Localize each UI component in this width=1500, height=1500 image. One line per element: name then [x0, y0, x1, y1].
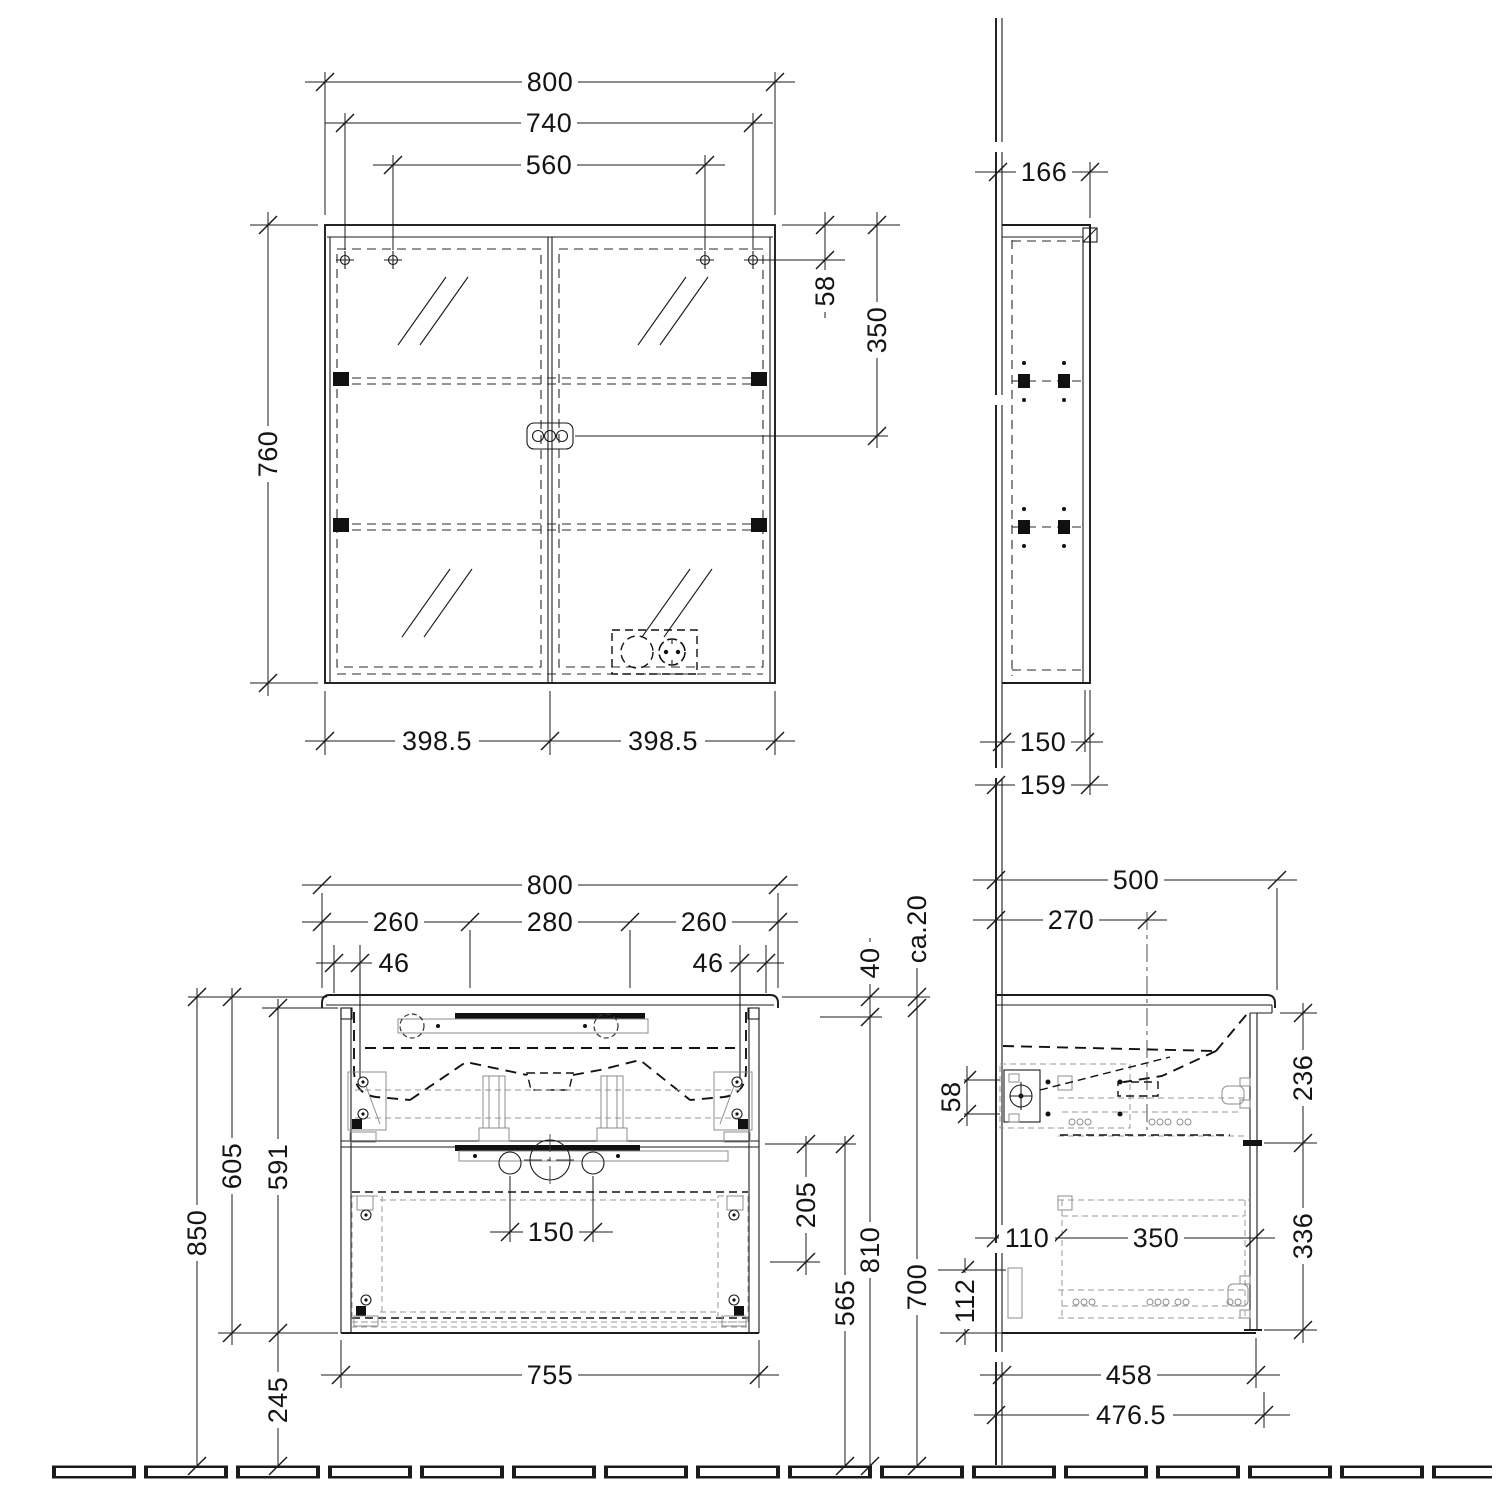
bottom-drawer-internals [352, 1192, 748, 1326]
view-mirror-cabinet-side [1002, 225, 1097, 683]
dim-label: 605 [217, 1143, 247, 1190]
mirror-cabinet-body [325, 225, 775, 683]
dim-vanity-inset-left: 46 [373, 948, 415, 978]
dim-basin-height: 40 [855, 942, 885, 984]
dim-cabinet-height: 591 [263, 1139, 293, 1195]
dim-label: 800 [527, 870, 574, 900]
dim-side-depth: 500 [1108, 865, 1164, 895]
dim-label: 46 [378, 948, 409, 978]
dim-label: 700 [902, 1264, 932, 1311]
view-vanity-side [996, 912, 1275, 1333]
power-socket-unit [527, 423, 573, 449]
dim-cabinet-depth: 458 [1101, 1360, 1157, 1390]
hinge-hardware [1012, 361, 1083, 548]
dim-label: 850 [182, 1210, 212, 1257]
dim-basin-to-bottom: 605 [217, 1138, 247, 1194]
dim-mirror-door-right: 398.5 [621, 726, 705, 756]
mirror-fixing-screws [336, 251, 762, 269]
dim-mirror-mount-top-offset: 58 [810, 270, 840, 312]
dims-mirror-front: 800 740 560 760 58 350 398.5 398.5 [250, 67, 900, 756]
dim-label: 270 [1048, 905, 1095, 935]
dims-mirror-side: 166 150 159 [975, 157, 1108, 800]
dim-label: 565 [830, 1280, 860, 1327]
washbasin-top [322, 995, 778, 1008]
dim-floor-clearance: 245 [263, 1372, 293, 1428]
dim-rail-length: 350 [1128, 1223, 1184, 1253]
dim-label: 810 [855, 1227, 885, 1274]
dim-vanity-span-center: 280 [522, 907, 578, 937]
dim-vanity-width: 800 [522, 870, 578, 900]
dim-label: 166 [1021, 157, 1068, 187]
top-drawer-handle-rail [398, 1013, 648, 1038]
dim-split-height: 565 [830, 1275, 860, 1331]
dim-label: 58 [936, 1081, 966, 1112]
dim-mirror-socket-offset: 350 [862, 302, 892, 358]
dim-label: 260 [681, 907, 728, 937]
dim-underside-height: 810 [855, 1222, 885, 1278]
dim-label: 280 [527, 907, 574, 937]
dim-label: 110 [1005, 1223, 1050, 1253]
dim-bracket-offset: 58 [936, 1076, 966, 1118]
dim-label: 350 [862, 307, 892, 354]
dim-label: 755 [527, 1360, 574, 1390]
dim-label: 159 [1020, 770, 1067, 800]
dim-label: 336 [1288, 1213, 1318, 1260]
view-mirror-cabinet-front [325, 225, 775, 683]
dim-label: 760 [253, 431, 283, 478]
wall-mount-bracket [1000, 1064, 1130, 1128]
dim-cabinet-width: 755 [522, 1360, 578, 1390]
dim-bottom-drawer-front: 336 [1288, 1208, 1318, 1264]
dim-drain-spacing: 150 [523, 1217, 579, 1247]
dim-label: 560 [526, 150, 573, 180]
dim-top-drawer-front: 236 [1288, 1050, 1318, 1106]
dim-rail-offset: 110 [999, 1223, 1055, 1253]
dim-vanity-span-right: 260 [676, 907, 732, 937]
dim-label: 150 [528, 1217, 575, 1247]
dim-side-drain-offset: 270 [1043, 905, 1099, 935]
bottom-drawer-handle-drain [455, 1134, 728, 1186]
internal-socket-detail [612, 630, 697, 674]
dim-label: 800 [527, 67, 574, 97]
dim-label: 112 [950, 1279, 980, 1324]
washbasin-side-profile [996, 995, 1275, 1013]
dim-label: 260 [373, 907, 420, 937]
dim-mirror-body-depth: 150 [1015, 727, 1071, 757]
view-vanity-front [322, 968, 778, 1333]
dim-label: 476.5 [1096, 1400, 1166, 1430]
dim-total-depth: 476.5 [1089, 1400, 1173, 1430]
dim-total-height: 850 [182, 1205, 212, 1261]
dims-vanity-side: 500 270 236 336 110 350 112 458 476.5 [938, 865, 1318, 1430]
dim-trap-height: 700 [902, 1259, 932, 1315]
dim-vanity-inset-right: 46 [687, 948, 729, 978]
dim-mirror-width: 800 [522, 67, 578, 97]
dim-vanity-span-left: 260 [368, 907, 424, 937]
dim-label: 591 [263, 1144, 293, 1191]
dim-label: 500 [1113, 865, 1160, 895]
dim-label: 740 [526, 108, 573, 138]
dim-mirror-total-depth: 159 [1015, 770, 1071, 800]
dim-label: 58 [810, 275, 840, 306]
technical-drawing-page: 800 740 560 760 58 350 398.5 398.5 [0, 0, 1500, 1500]
washbasin-hidden-outline [354, 1012, 746, 1118]
dim-mirror-door-left: 398.5 [395, 726, 479, 756]
vanity-side-body [1002, 1013, 1262, 1333]
dim-mirror-mount-inner: 560 [521, 150, 577, 180]
glass-hatch-marks [398, 277, 712, 637]
dim-label: 398.5 [402, 726, 472, 756]
drawer-slide-rails [1008, 1078, 1250, 1318]
dim-label: 236 [1288, 1055, 1318, 1102]
furniture-dimension-drawing: 800 740 560 760 58 350 398.5 398.5 [0, 0, 1500, 1500]
dim-label: 40 [855, 947, 885, 978]
dim-label: 350 [1133, 1223, 1180, 1253]
dim-basin-overhang: ca.20 [902, 890, 932, 968]
dim-drawer-clearance: 205 [791, 1177, 821, 1233]
dims-vanity-front: 800 260 280 260 46 46 40 ca.20 58 850 60… [182, 870, 1000, 1475]
dim-label: 205 [791, 1182, 821, 1229]
dim-label: 398.5 [628, 726, 698, 756]
dim-label: 46 [692, 948, 723, 978]
dim-mirror-height: 760 [253, 426, 283, 482]
dim-label: 245 [263, 1377, 293, 1424]
dim-siphon-offset: 112 [950, 1273, 980, 1329]
dim-label: 150 [1020, 727, 1067, 757]
dim-label: 458 [1106, 1360, 1153, 1390]
shelf-lines [333, 372, 767, 532]
dim-label: ca.20 [902, 895, 932, 964]
dim-mirror-mount-width: 740 [521, 108, 577, 138]
dim-mirror-depth: 166 [1016, 157, 1072, 187]
